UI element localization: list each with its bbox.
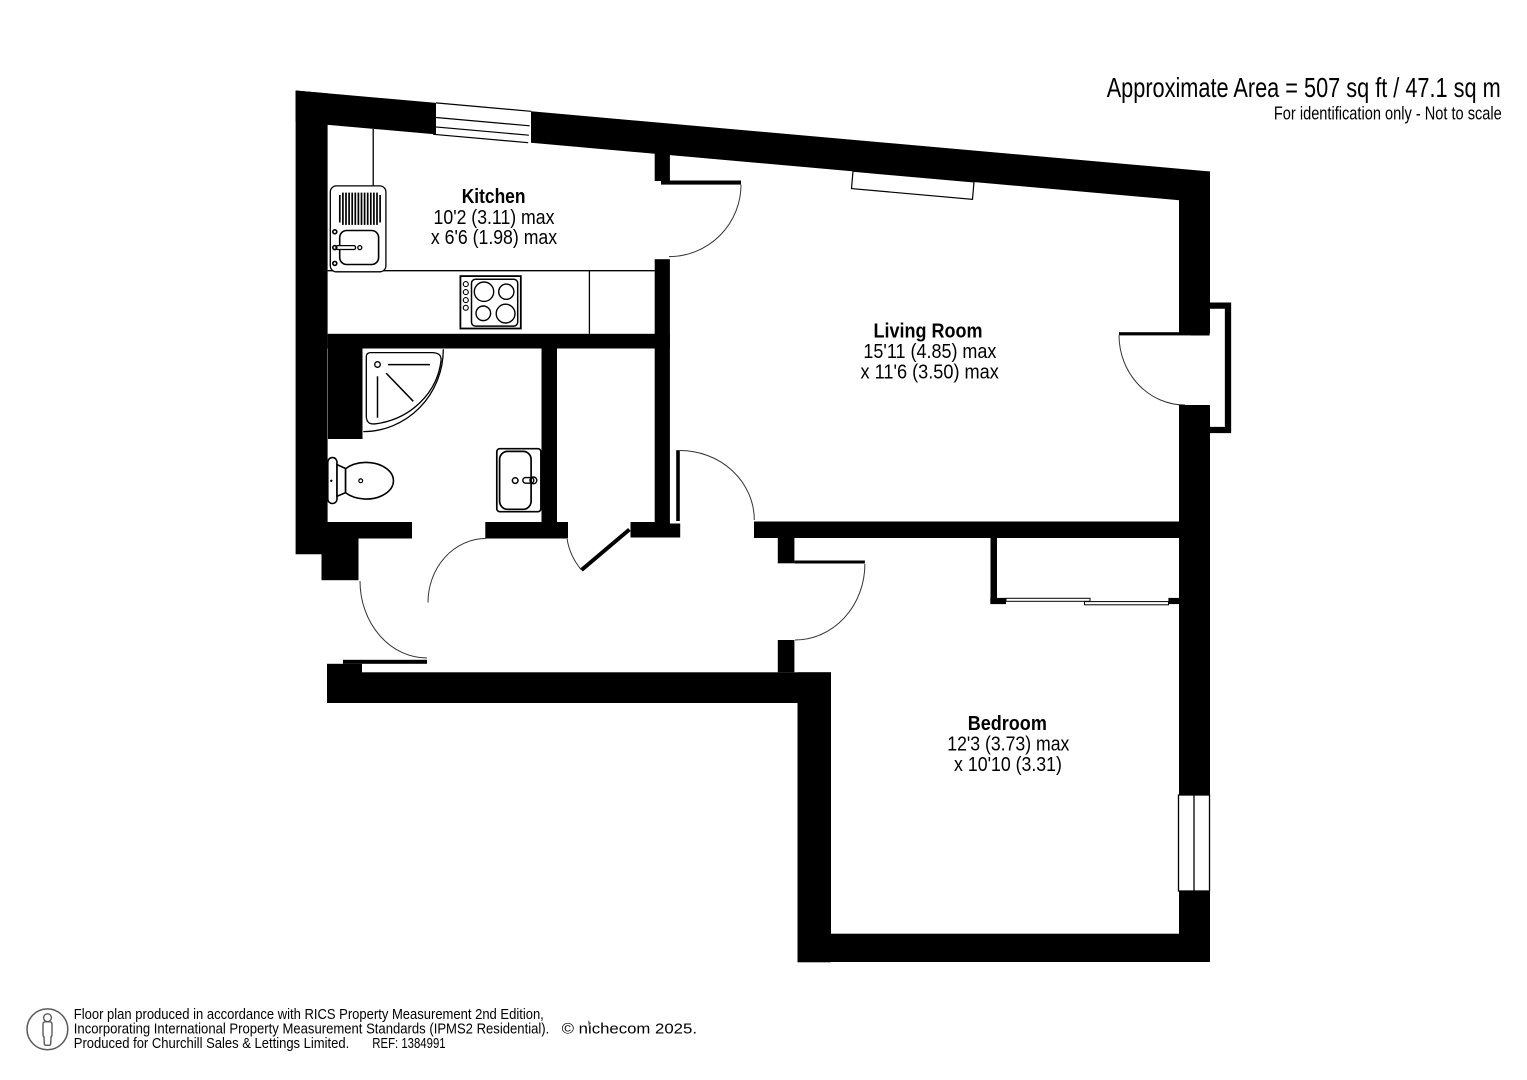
svg-text:REF: 1384991: REF: 1384991 [372, 1036, 445, 1052]
svg-text:x 10'10 (3.31): x 10'10 (3.31) [954, 754, 1062, 776]
svg-text:For identification only - Not: For identification only - Not to scale [1274, 104, 1502, 124]
svg-text:10'2 (3.11) max: 10'2 (3.11) max [434, 207, 555, 229]
svg-text:Floor plan produced in accorda: Floor plan produced in accordance with R… [74, 1007, 544, 1023]
svg-text:15'11 (4.85) max: 15'11 (4.85) max [863, 341, 996, 363]
svg-text:Kitchen: Kitchen [462, 186, 526, 208]
svg-text:x 6'6 (1.98) max: x 6'6 (1.98) max [431, 227, 557, 249]
svg-text:Living Room: Living Room [874, 321, 983, 343]
svg-text:Bedroom: Bedroom [968, 713, 1047, 735]
svg-text:Approximate Area = 507 sq ft /: Approximate Area = 507 sq ft / 47.1 sq m [1107, 72, 1501, 103]
svg-text:Incorporating International Pr: Incorporating International Property Mea… [74, 1022, 550, 1038]
svg-text:12'3 (3.73) max: 12'3 (3.73) max [947, 733, 1069, 755]
svg-text:© nichecom 2025.: © nichecom 2025. [562, 1022, 697, 1038]
svg-text:Produced for Churchill Sales &: Produced for Churchill Sales & Lettings … [74, 1036, 349, 1052]
svg-text:x 11'6 (3.50) max: x 11'6 (3.50) max [861, 361, 999, 383]
